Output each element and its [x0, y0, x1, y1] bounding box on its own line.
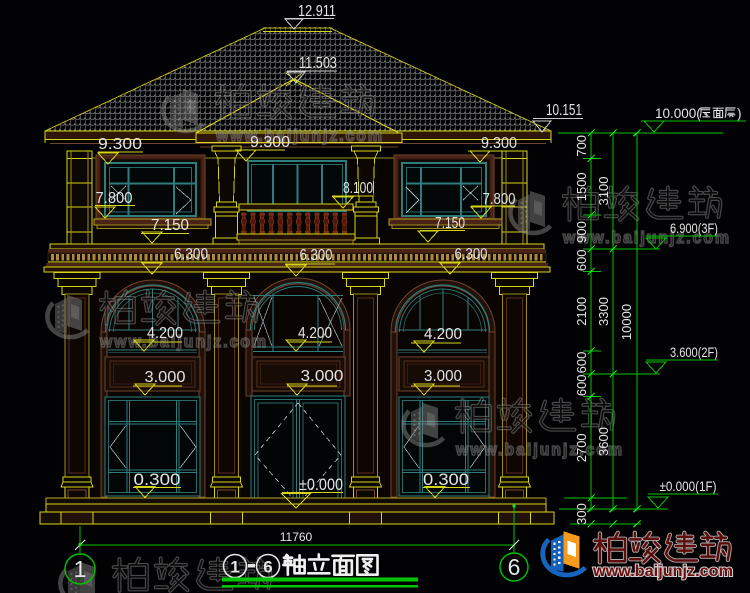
svg-text:7.150: 7.150 — [435, 215, 465, 232]
svg-text:6.300: 6.300 — [455, 246, 488, 263]
svg-text:6.900(3F): 6.900(3F) — [670, 221, 718, 236]
svg-text:): ) — [737, 106, 742, 121]
svg-text:±0.000(1F): ±0.000(1F) — [660, 479, 717, 494]
svg-text:3.000: 3.000 — [301, 368, 344, 385]
svg-text:1: 1 — [74, 556, 87, 582]
svg-text:3100: 3100 — [596, 177, 611, 206]
svg-text:10.151: 10.151 — [546, 102, 582, 119]
svg-text:www.baijunjz.com: www.baijunjz.com — [215, 126, 384, 145]
svg-text:10000: 10000 — [619, 304, 634, 340]
svg-text:700: 700 — [574, 135, 589, 157]
svg-text:600: 600 — [574, 374, 589, 396]
svg-text:7.150: 7.150 — [151, 217, 189, 234]
svg-text:±0.000: ±0.000 — [299, 476, 343, 494]
svg-text:7.800: 7.800 — [483, 191, 516, 208]
svg-text:1500: 1500 — [574, 172, 589, 201]
svg-text:9.300: 9.300 — [98, 136, 142, 153]
svg-text:www.baijunjz.com: www.baijunjz.com — [99, 332, 268, 351]
svg-text:3300: 3300 — [596, 297, 611, 326]
svg-text:9.300: 9.300 — [250, 134, 290, 151]
svg-text:600: 600 — [574, 249, 589, 271]
svg-text:900: 900 — [574, 221, 589, 243]
svg-text:10.000(: 10.000( — [655, 106, 701, 121]
svg-text:3.600(2F): 3.600(2F) — [670, 345, 718, 360]
svg-text:2700: 2700 — [574, 433, 589, 462]
svg-text:3.000: 3.000 — [145, 369, 186, 386]
svg-text:1: 1 — [230, 558, 239, 577]
svg-text:www.baijunjz.com: www.baijunjz.com — [592, 563, 733, 580]
svg-text:11.503: 11.503 — [299, 55, 337, 72]
svg-text:3600: 3600 — [596, 427, 611, 456]
svg-text:6: 6 — [508, 554, 521, 580]
svg-text:2100: 2100 — [574, 297, 589, 326]
svg-text:4.200: 4.200 — [424, 326, 462, 343]
svg-text:3.000: 3.000 — [424, 368, 462, 385]
svg-text:300: 300 — [574, 503, 589, 525]
svg-text:600: 600 — [574, 352, 589, 374]
svg-text:4.200: 4.200 — [298, 325, 332, 342]
svg-text:4.200: 4.200 — [147, 325, 183, 342]
svg-text:9.300: 9.300 — [481, 135, 517, 152]
svg-text:6.300: 6.300 — [300, 247, 333, 264]
svg-text:12.911: 12.911 — [298, 3, 336, 20]
svg-text:6.300: 6.300 — [174, 246, 208, 263]
svg-text:6: 6 — [263, 558, 272, 577]
svg-text:8.100: 8.100 — [343, 180, 373, 197]
svg-text:11760: 11760 — [280, 530, 313, 544]
svg-text:7.800: 7.800 — [96, 190, 133, 207]
